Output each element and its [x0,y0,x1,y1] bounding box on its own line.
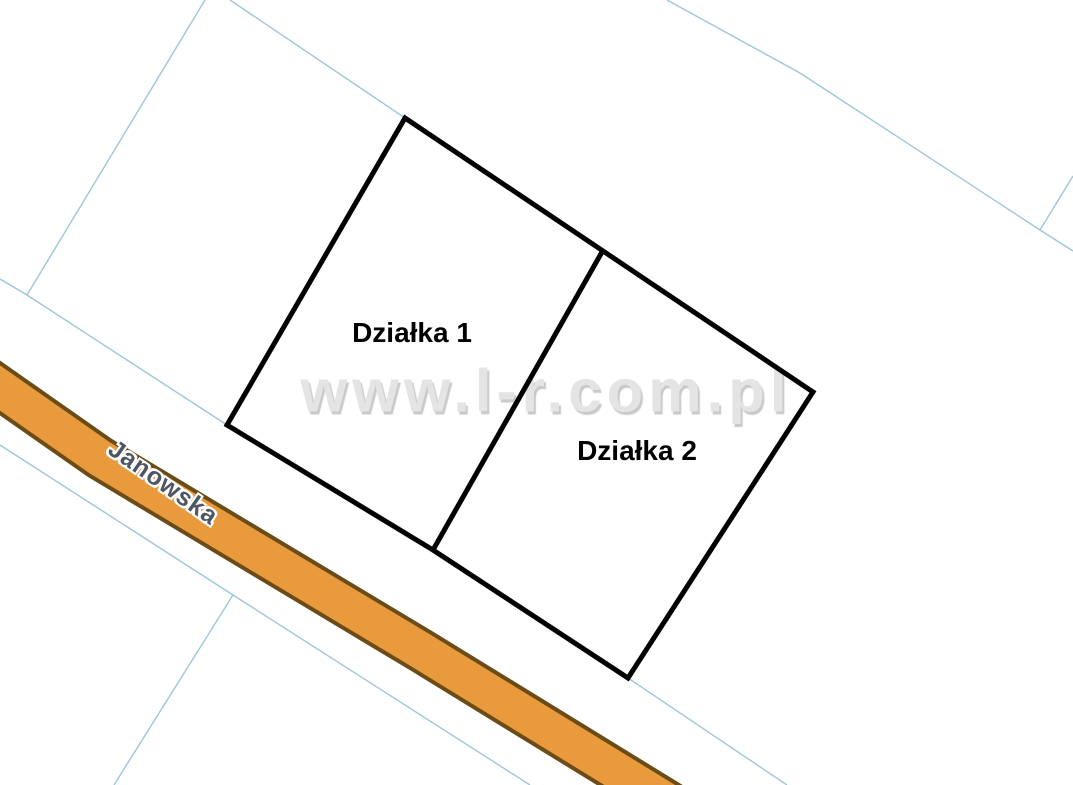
cadastral-line [0,0,205,295]
cadastral-line [114,595,233,785]
parcel-label-1: Działka 1 [352,317,472,349]
road-janowska [0,360,700,785]
road-surface [0,360,700,785]
cadastral-line [1040,176,1073,230]
cadastral-line [667,0,1073,251]
cadastral-map: www.l-r.com.pl Działka 1 Działka 2 Janow… [0,0,1073,785]
cadastral-boundary-lines [0,0,1073,785]
parcel-label-2: Działka 2 [577,435,697,467]
cadastral-line [230,0,405,118]
map-graphics [0,0,1073,785]
road-casing [0,360,700,785]
parcel-divider-line [433,252,602,550]
cadastral-line [0,445,530,785]
